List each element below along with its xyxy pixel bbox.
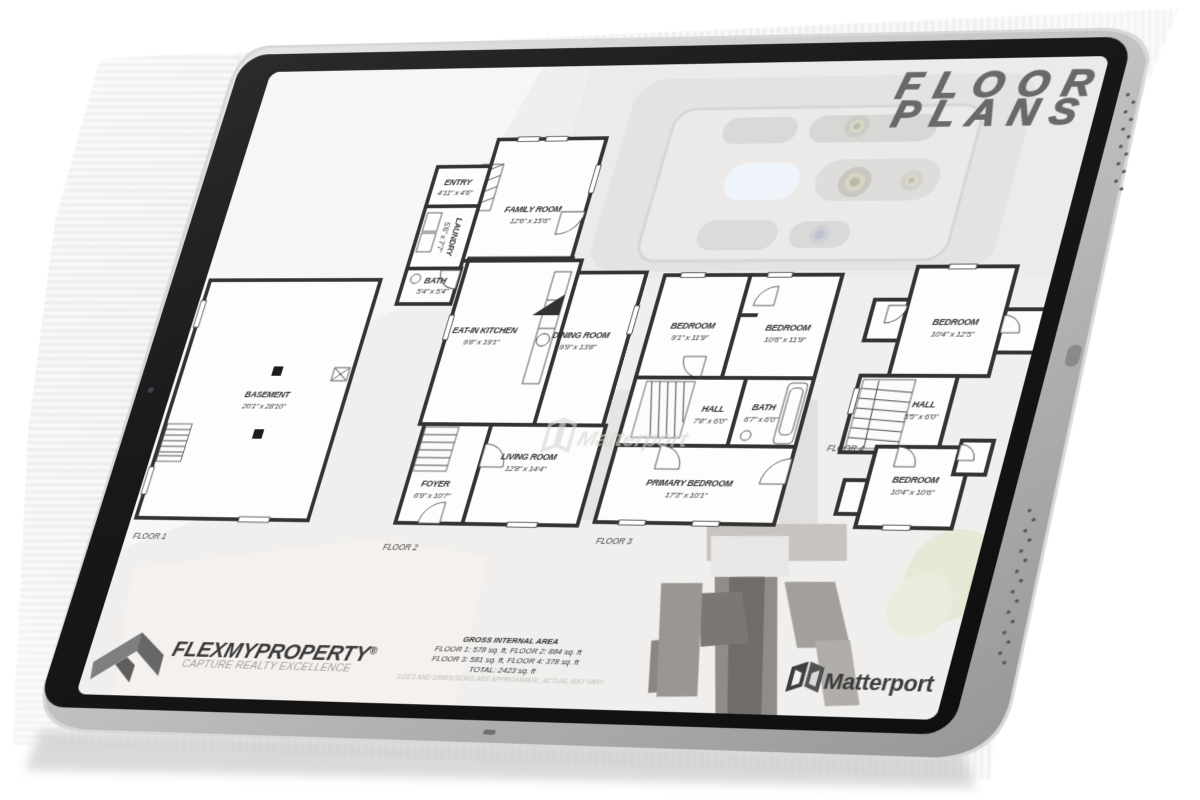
svg-text:10’4” x 12’5”: 10’4” x 12’5” — [930, 329, 976, 339]
svg-text:9’1” x 11’9”: 9’1” x 11’9” — [670, 333, 710, 342]
svg-text:4’11” x 4’6”: 4’11” x 4’6” — [436, 188, 474, 197]
svg-text:HALL: HALL — [700, 404, 726, 414]
svg-text:BEDROOM: BEDROOM — [669, 321, 716, 330]
svg-text:DINING ROOM: DINING ROOM — [551, 331, 611, 340]
svg-text:FLOOR 4: FLOOR 4 — [826, 444, 865, 454]
svg-text:BATH: BATH — [423, 276, 448, 285]
svg-text:9’8” x 19’1”: 9’8” x 19’1” — [462, 337, 501, 346]
svg-text:FLOOR 2: FLOOR 2 — [382, 542, 420, 552]
svg-text:Matterport: Matterport — [821, 670, 938, 698]
svg-text:FLOOR 3: FLOOR 3 — [595, 536, 634, 546]
svg-text:ENTRY: ENTRY — [443, 178, 474, 187]
svg-text:BASEMENT: BASEMENT — [244, 390, 293, 399]
svg-text:FLOOR 1: FLOOR 1 — [132, 531, 168, 541]
svg-text:PLANS: PLANS — [887, 91, 1095, 135]
svg-text:20’1” x 28’10”: 20’1” x 28’10” — [240, 401, 287, 411]
svg-text:12’6” x 15’6”: 12’6” x 15’6” — [509, 216, 552, 225]
svg-text:BATH: BATH — [751, 403, 777, 413]
svg-text:10’4” x 10’6”: 10’4” x 10’6” — [889, 487, 936, 497]
svg-text:BEDROOM: BEDROOM — [931, 317, 980, 327]
svg-text:Matterport: Matterport — [575, 427, 693, 452]
svg-text:10’6” x 11’9”: 10’6” x 11’9” — [763, 335, 808, 345]
svg-text:FAMILY ROOM: FAMILY ROOM — [504, 205, 564, 215]
svg-text:BEDROOM: BEDROOM — [891, 475, 940, 485]
svg-text:5’4” x 5’4”: 5’4” x 5’4” — [415, 286, 450, 295]
svg-text:7’8” x 6’0”: 7’8” x 6’0” — [692, 416, 728, 426]
svg-text:9’9” x 13’8”: 9’9” x 13’8” — [558, 342, 598, 351]
svg-text:6’7” x 6’0”: 6’7” x 6’0” — [743, 414, 780, 424]
svg-text:5’5” x 6’0”: 5’5” x 6’0” — [902, 412, 939, 422]
svg-text:BEDROOM: BEDROOM — [764, 323, 812, 333]
svg-text:12’8” x 14’4”: 12’8” x 14’4” — [504, 464, 548, 474]
svg-text:EAT-IN KITCHEN: EAT-IN KITCHEN — [451, 326, 518, 335]
svg-text:TOTAL: 2423 sq. ft: TOTAL: 2423 sq. ft — [468, 664, 538, 676]
svg-text:LIVING ROOM: LIVING ROOM — [500, 452, 559, 462]
svg-text:17’3” x 10’1”: 17’3” x 10’1” — [664, 490, 709, 500]
svg-text:HALL: HALL — [911, 400, 937, 410]
svg-text:6’9” x 10’7”: 6’9” x 10’7” — [413, 491, 453, 501]
svg-text:FOYER: FOYER — [420, 479, 452, 489]
svg-text:PRIMARY BEDROOM: PRIMARY BEDROOM — [645, 478, 734, 489]
